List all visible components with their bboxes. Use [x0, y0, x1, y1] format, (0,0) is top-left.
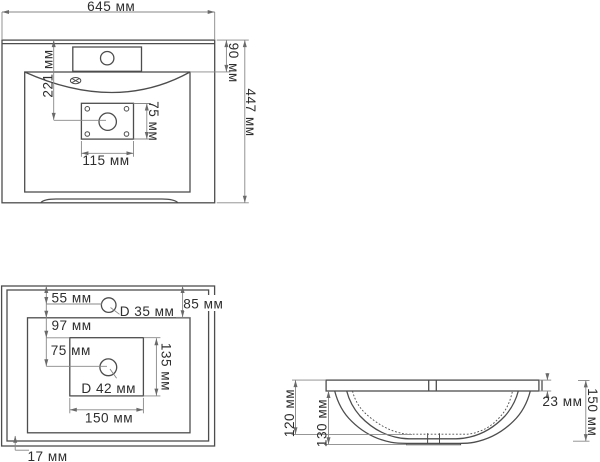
- svg-text:90 мм: 90 мм: [226, 43, 241, 83]
- svg-text:75 мм: 75 мм: [51, 343, 91, 358]
- svg-text:85 мм: 85 мм: [183, 297, 223, 312]
- svg-text:17 мм: 17 мм: [27, 449, 67, 462]
- svg-text:D 35 мм: D 35 мм: [120, 304, 175, 319]
- svg-text:120 мм: 120 мм: [282, 389, 297, 437]
- svg-text:221 мм: 221 мм: [41, 49, 56, 97]
- svg-text:55 мм: 55 мм: [51, 291, 91, 306]
- svg-text:447 мм: 447 мм: [243, 88, 258, 136]
- svg-text:23 мм: 23 мм: [542, 394, 582, 409]
- svg-text:D 42 мм: D 42 мм: [81, 381, 136, 396]
- svg-text:645 мм: 645 мм: [87, 0, 135, 14]
- svg-text:150 мм: 150 мм: [585, 388, 600, 436]
- svg-text:115 мм: 115 мм: [82, 153, 129, 168]
- svg-text:75 мм: 75 мм: [146, 101, 161, 141]
- svg-text:130 мм: 130 мм: [315, 399, 330, 447]
- svg-text:97 мм: 97 мм: [51, 318, 91, 333]
- svg-text:150 мм: 150 мм: [85, 411, 133, 426]
- svg-text:135 мм: 135 мм: [158, 343, 173, 391]
